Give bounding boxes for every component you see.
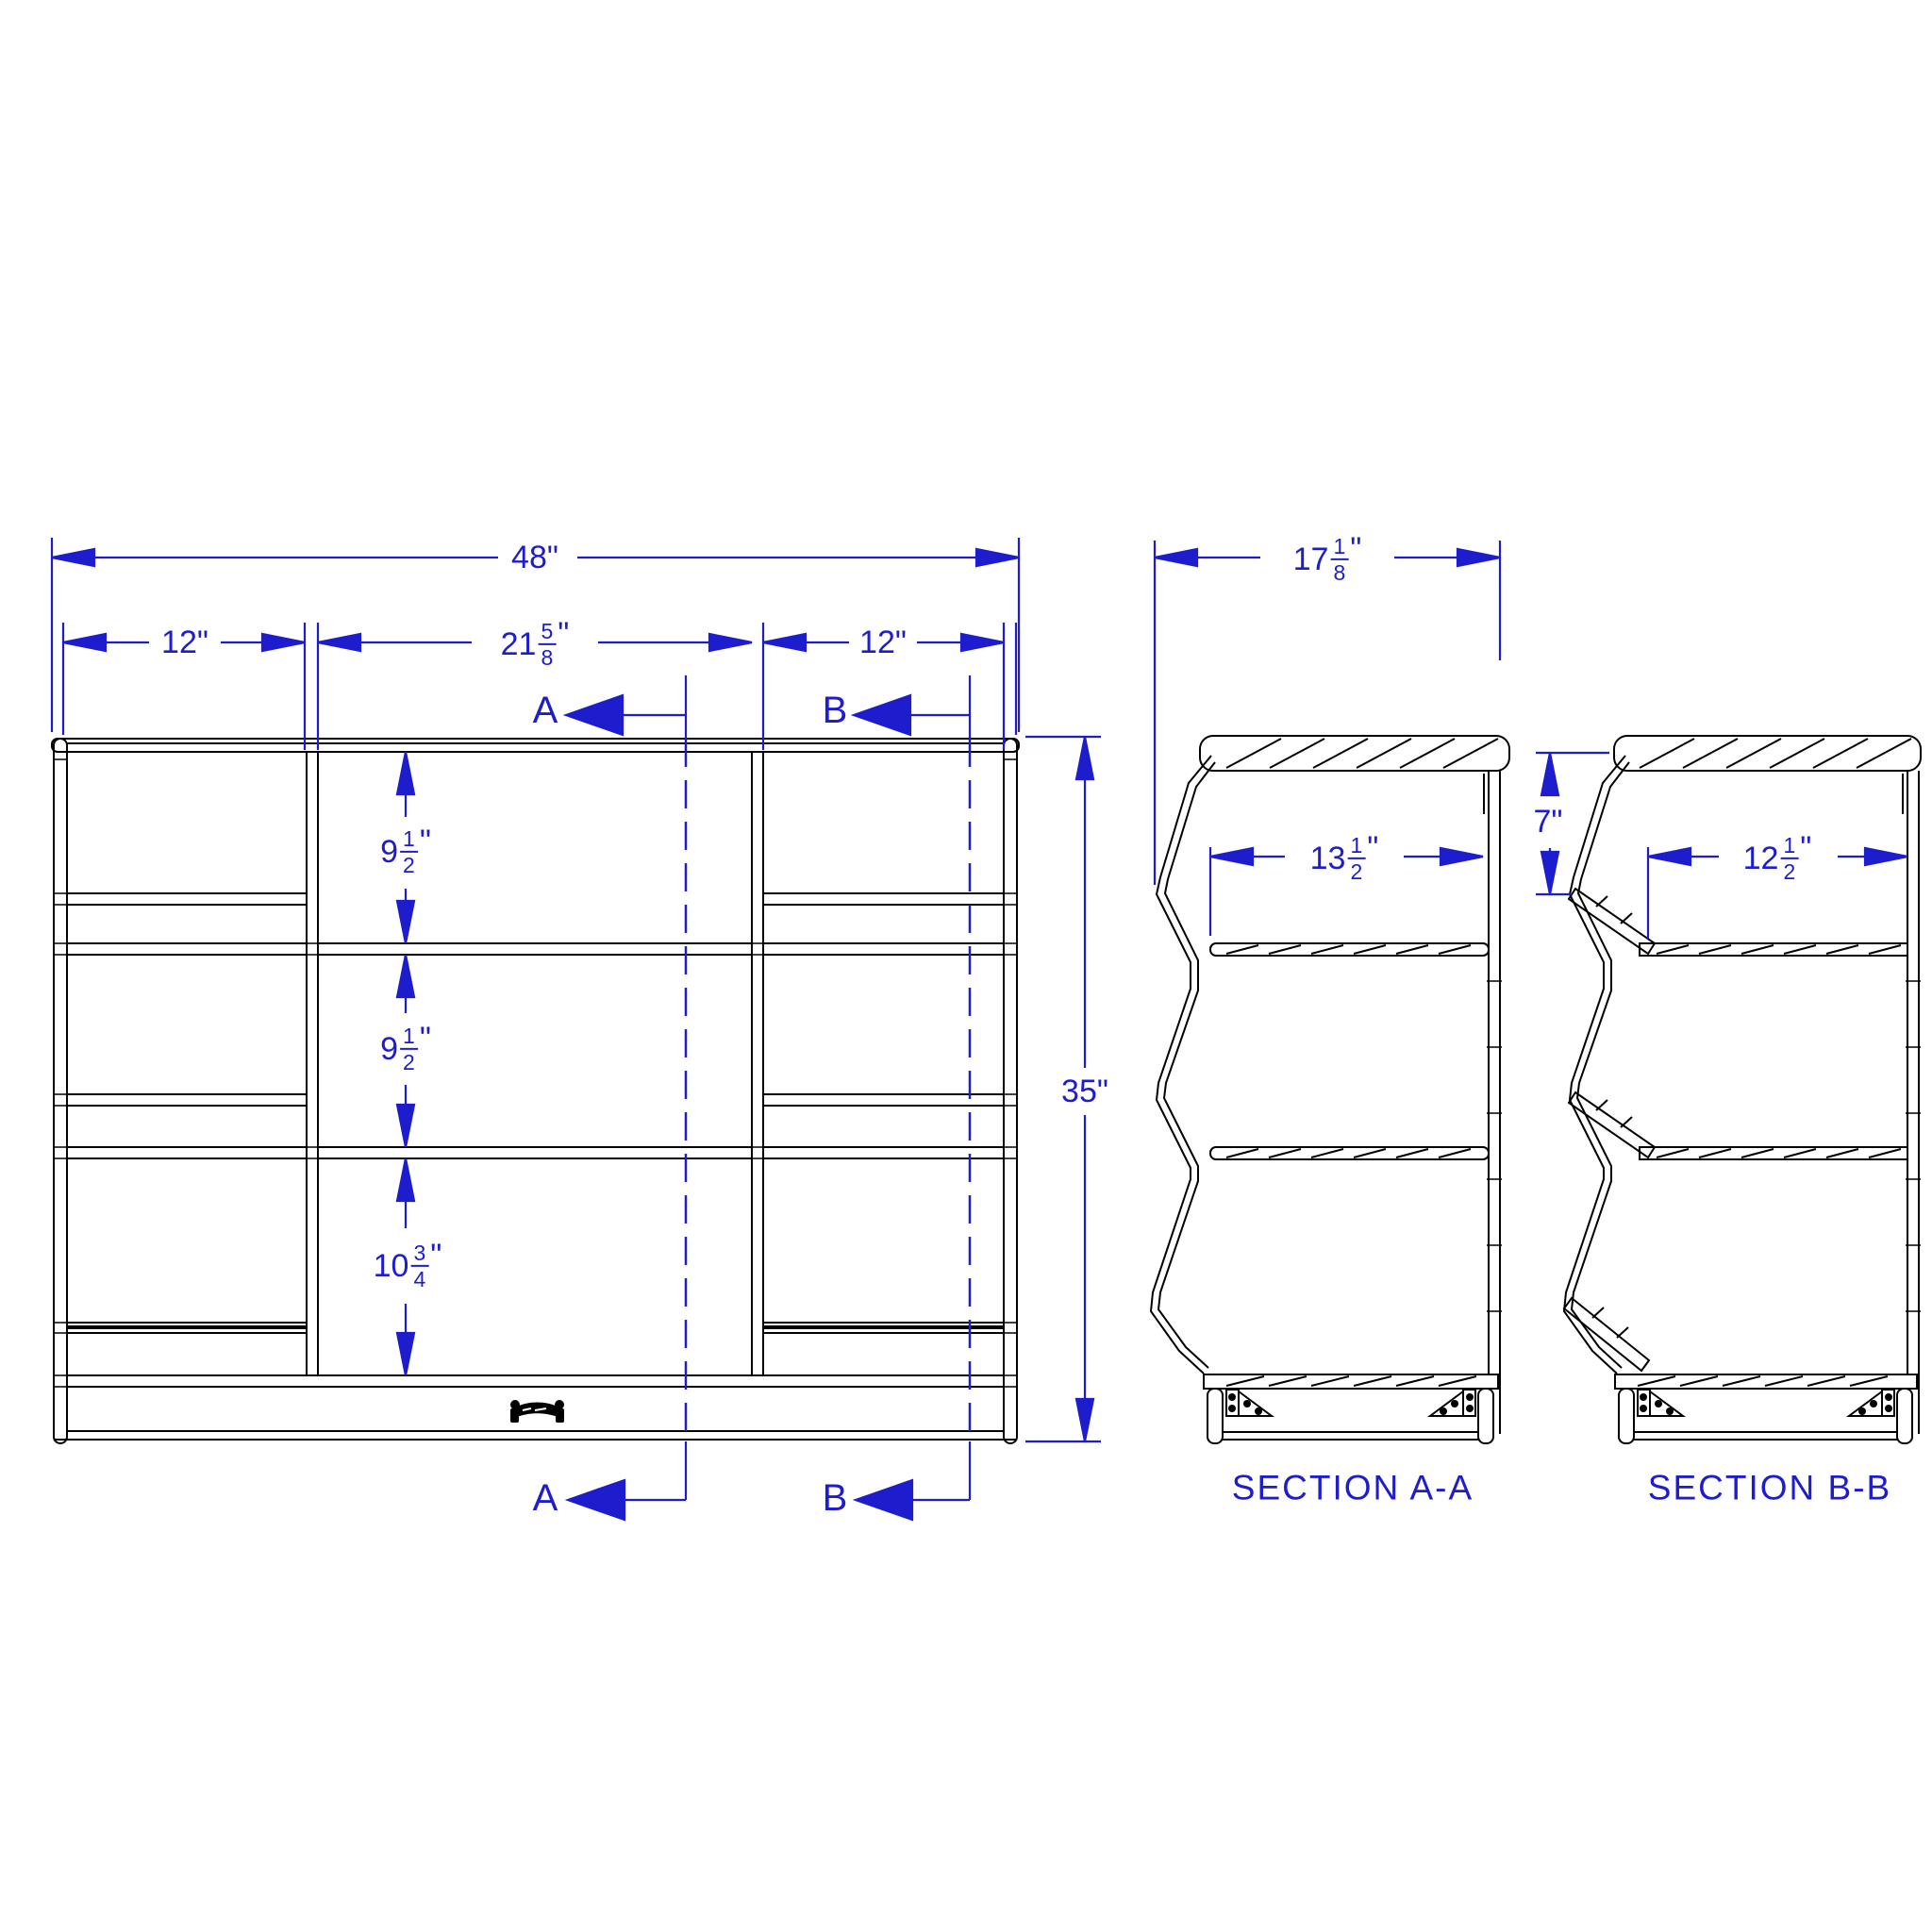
section-arrow-icon: [854, 695, 910, 735]
dim-middle-opening: 2158": [498, 620, 573, 669]
section-b-top-hatch: [1640, 739, 1911, 768]
front-view: [52, 739, 1019, 1443]
caster-bracket-icon: [1226, 1390, 1272, 1416]
section-b-title: SECTION B-B: [1648, 1471, 1891, 1506]
section-a-base: [1204, 1374, 1498, 1443]
section-a-top-rail: [1200, 736, 1509, 771]
dim-section-b-shelf-depth: 1212": [1740, 834, 1815, 883]
edge-joint-ticks: [54, 759, 1017, 1387]
section-b-shelves: [1640, 943, 1907, 1159]
section-marker-b-bottom: B: [821, 1479, 850, 1517]
arrow-right-icon: [976, 549, 1019, 566]
section-arrow-icon: [856, 1480, 912, 1520]
section-b-front-profile: [1564, 756, 1629, 1374]
dim-section-a-depth: 1718": [1291, 535, 1365, 584]
cad-drawing: [0, 0, 1932, 1932]
dim-lower-shelf-spacing: 1034": [371, 1241, 445, 1291]
right-column-shelves: [763, 893, 1004, 1333]
section-b-sloped-shelves: [1564, 889, 1655, 1371]
section-a-top-hatch: [1226, 739, 1498, 768]
dim-section-b-front-drop: 7": [1531, 806, 1566, 838]
bottom-shelf: [67, 1375, 1004, 1387]
dim-upper-shelf-spacing: 912": [377, 827, 434, 876]
section-arrow-icon: [566, 695, 623, 735]
section-a-front-profile: [1151, 756, 1215, 1374]
section-marker-a-top: A: [531, 691, 560, 729]
left-side-panel: [54, 739, 67, 1443]
section-a-shelves: [1210, 943, 1489, 1159]
caster-bracket-icon: [1638, 1390, 1683, 1416]
dim-middle-shelf-spacing: 912": [377, 1024, 434, 1074]
caster-bracket-icon: [1849, 1390, 1894, 1416]
section-a-title: SECTION A-A: [1232, 1471, 1474, 1506]
section-arrow-icon: [568, 1480, 625, 1520]
dim-overall-width: 48": [508, 541, 561, 574]
brand-logo-icon: [510, 1400, 564, 1423]
right-divider-panel: [752, 752, 763, 1375]
left-divider-panel: [307, 752, 318, 1375]
dim-section-a-shelf-depth: 1312": [1307, 834, 1382, 883]
drawing-canvas: 48" 12" 2158" 12" 35" 912" 912" 1034" A …: [0, 0, 1932, 1932]
dim-left-opening: 12": [158, 626, 211, 658]
dim-right-opening: 12": [857, 626, 909, 658]
front-view-dimensions: [52, 538, 1101, 1520]
top-rail: [52, 739, 1019, 752]
caster-bracket-icon: [1430, 1390, 1475, 1416]
left-column-shelves: [67, 893, 307, 1333]
section-marker-a-bottom: A: [531, 1479, 560, 1517]
section-cut-a-lines: [566, 675, 686, 1520]
section-b-top-rail: [1614, 736, 1921, 771]
arrow-left-icon: [52, 549, 94, 566]
dim-overall-height: 35": [1058, 1075, 1111, 1108]
right-side-panel: [1004, 739, 1017, 1443]
section-marker-b-top: B: [821, 691, 850, 729]
section-b-base: [1615, 1374, 1917, 1443]
section-cut-b-lines: [854, 675, 970, 1520]
